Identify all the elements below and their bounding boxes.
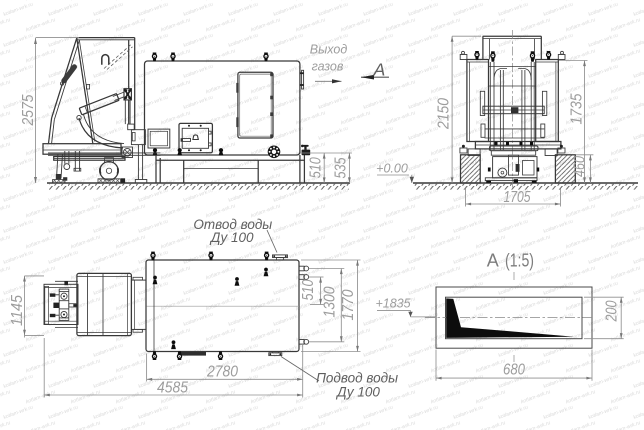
svg-text:1770: 1770 (340, 289, 357, 320)
svg-text:+0.00: +0.00 (376, 162, 408, 176)
svg-text:1705: 1705 (504, 189, 531, 206)
svg-text:460: 460 (572, 156, 589, 177)
svg-text:1145: 1145 (9, 295, 26, 326)
svg-text:A: A (373, 60, 386, 80)
svg-text:(1:5): (1:5) (505, 251, 534, 271)
svg-text:510: 510 (308, 157, 325, 178)
svg-text:2780: 2780 (206, 364, 238, 381)
svg-text:Ду 100: Ду 100 (335, 385, 380, 400)
svg-text:1300: 1300 (322, 286, 339, 317)
svg-text:+1835: +1835 (375, 297, 410, 311)
svg-text:1735: 1735 (569, 93, 586, 124)
svg-text:газов: газов (312, 60, 344, 74)
svg-text:A: A (487, 251, 499, 271)
svg-text:4585: 4585 (157, 380, 188, 397)
svg-text:510: 510 (300, 279, 317, 300)
svg-text:535: 535 (333, 157, 350, 178)
svg-text:Ду 100: Ду 100 (209, 230, 254, 245)
svg-text:Выход: Выход (310, 43, 348, 57)
svg-text:2150: 2150 (436, 98, 453, 130)
svg-text:680: 680 (503, 362, 525, 379)
svg-text:2575: 2575 (20, 94, 37, 126)
svg-text:200: 200 (604, 300, 621, 322)
svg-text:Подвод воды: Подвод воды (316, 371, 398, 386)
